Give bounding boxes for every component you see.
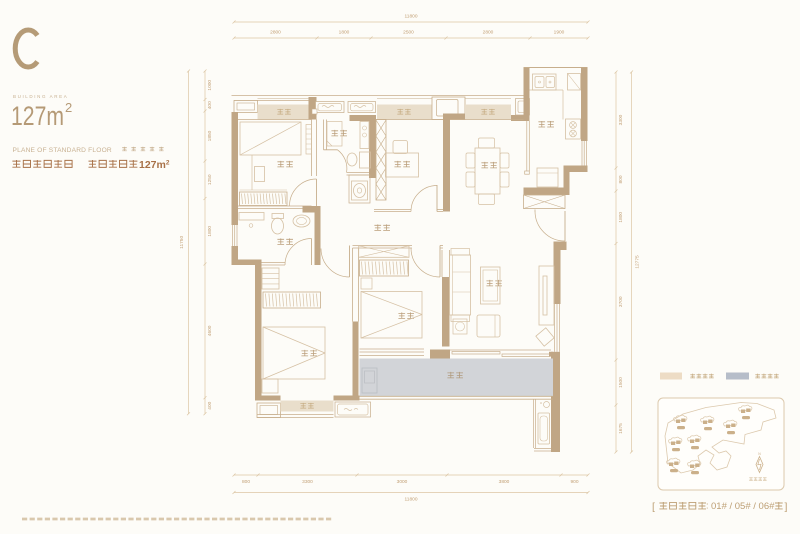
svg-text:2800: 2800	[483, 30, 494, 36]
svg-text:1800: 1800	[207, 226, 213, 237]
svg-text:1675: 1675	[618, 423, 624, 434]
svg-text:400: 400	[207, 401, 213, 409]
svg-text:01# / 05# / 06#: 01# / 05# / 06#	[711, 501, 775, 512]
svg-text:127m2: 127m2	[139, 159, 170, 171]
svg-text::: :	[706, 501, 709, 511]
svg-text:4600: 4600	[207, 325, 213, 336]
svg-text:1500: 1500	[618, 377, 624, 388]
svg-text:800: 800	[618, 175, 624, 183]
svg-text:1250: 1250	[207, 174, 213, 185]
svg-text:11800: 11800	[405, 14, 418, 20]
svg-text:3800: 3800	[499, 479, 510, 485]
svg-text:3700: 3700	[618, 296, 624, 307]
svg-text:]: ]	[785, 501, 788, 513]
svg-text:PLANE OF STANDARD FLOOR: PLANE OF STANDARD FLOOR	[13, 147, 112, 154]
svg-text:11750: 11750	[179, 236, 185, 249]
svg-text:800: 800	[242, 479, 250, 485]
svg-text:1800: 1800	[339, 30, 350, 36]
svg-text:1000: 1000	[207, 80, 213, 91]
svg-text:1800: 1800	[618, 212, 624, 223]
svg-text:1850: 1850	[207, 130, 213, 141]
svg-text:3300: 3300	[618, 114, 624, 125]
svg-text:2: 2	[65, 100, 72, 115]
svg-text:[: [	[652, 501, 655, 513]
svg-text:127m: 127m	[11, 101, 64, 131]
svg-text:2800: 2800	[270, 30, 281, 36]
svg-text:1900: 1900	[554, 30, 565, 36]
svg-text:2500: 2500	[403, 30, 414, 36]
svg-text:BUILDING AREA: BUILDING AREA	[13, 94, 68, 99]
svg-text:11800: 11800	[405, 497, 418, 503]
svg-text:900: 900	[570, 479, 578, 485]
svg-text:3300: 3300	[302, 479, 313, 485]
svg-text:400: 400	[207, 101, 213, 109]
svg-text:12775: 12775	[635, 255, 641, 269]
svg-text:3000: 3000	[397, 479, 408, 485]
